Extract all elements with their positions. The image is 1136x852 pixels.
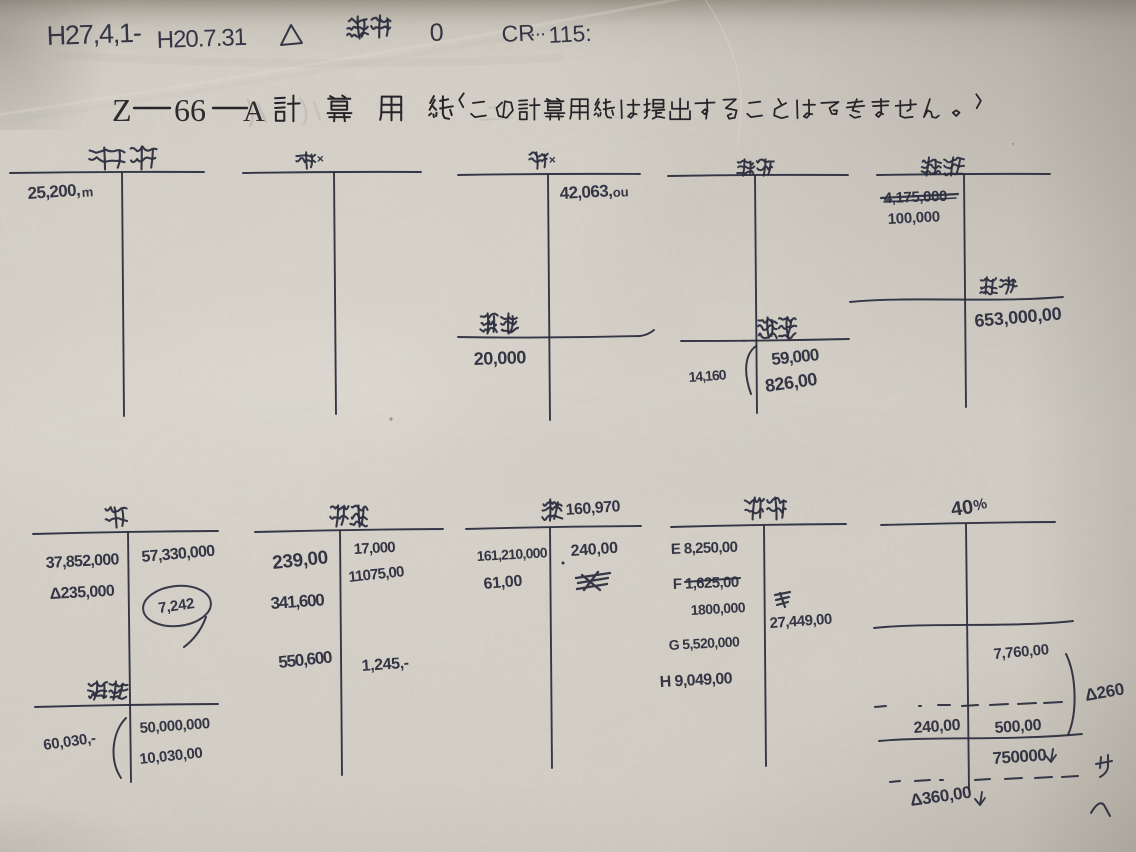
svg-text:750000: 750000 — [992, 745, 1047, 768]
svg-text:m: m — [81, 184, 94, 200]
svg-text:Z: Z — [112, 92, 132, 128]
svg-text:×: × — [316, 152, 324, 166]
svg-text:0: 0 — [429, 19, 444, 47]
svg-text:240,00: 240,00 — [570, 540, 619, 560]
svg-text:ou: ou — [612, 184, 629, 200]
svg-text:17,000: 17,000 — [353, 539, 395, 558]
svg-text:H27,4,1-: H27,4,1- — [46, 18, 141, 51]
svg-text:F 1,625,00: F 1,625,00 — [673, 574, 740, 593]
svg-text:500,00: 500,00 — [994, 717, 1042, 737]
svg-text:1800,000: 1800,000 — [690, 599, 746, 618]
svg-text:1,245,-: 1,245,- — [361, 655, 409, 675]
svg-text:14,160: 14,160 — [688, 366, 727, 385]
svg-text:42,063,: 42,063, — [559, 181, 612, 203]
svg-text:100,000: 100,000 — [887, 208, 940, 228]
svg-text:115:: 115: — [548, 20, 592, 48]
svg-text:×: × — [548, 153, 556, 167]
svg-text:61,00: 61,00 — [483, 573, 523, 593]
svg-text:341,600: 341,600 — [270, 590, 325, 613]
svg-text:25,200,: 25,200, — [27, 180, 81, 203]
svg-text:Δ235,000: Δ235,000 — [49, 583, 115, 603]
svg-text:E 8,250,00: E 8,250,00 — [671, 539, 738, 558]
svg-text:A: A — [243, 95, 265, 128]
svg-text:20,000: 20,000 — [473, 347, 526, 369]
svg-text:66: 66 — [174, 92, 206, 128]
svg-text:...: ... — [529, 19, 546, 41]
svg-text:H20.7.31: H20.7.31 — [156, 24, 247, 54]
svg-text:40: 40 — [950, 496, 975, 521]
svg-text:240,00: 240,00 — [913, 717, 961, 737]
